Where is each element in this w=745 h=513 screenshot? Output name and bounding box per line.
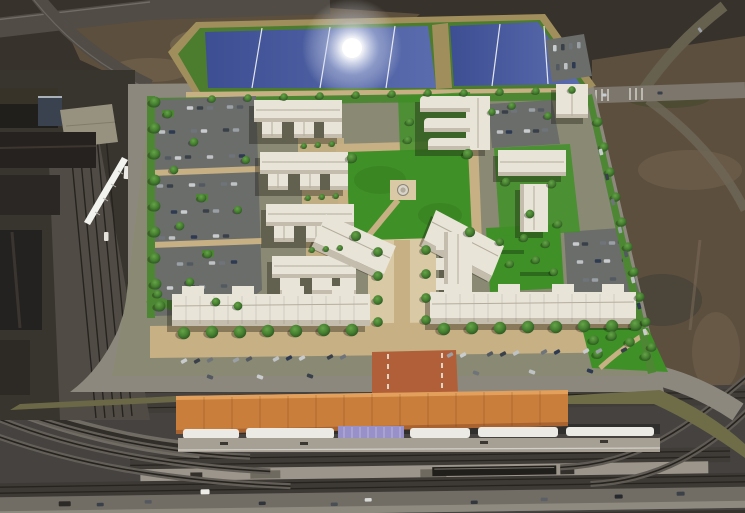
warehouse-4: [0, 230, 42, 330]
b2-building: [420, 96, 490, 150]
sun-glare-core: [342, 38, 362, 58]
corridor-train: [432, 465, 556, 476]
glass-tower: [38, 96, 62, 126]
east-block-1: [498, 150, 566, 176]
canopy-segment-4: [478, 427, 558, 437]
scene: [0, 0, 745, 513]
residential-row-2: [260, 152, 348, 190]
aerial-rendering: [0, 0, 745, 513]
warehouse-3: [0, 175, 60, 215]
canopy-segment-1: [183, 429, 239, 439]
residential-row-1: [254, 100, 342, 138]
station-crosswalk: [372, 350, 458, 396]
ne-parking-lot: [488, 100, 560, 148]
warehouse-2: [0, 132, 96, 168]
canopy-segment-5: [566, 427, 654, 436]
canopy-segment-2: [246, 428, 334, 439]
east-block-2: [520, 184, 548, 232]
gazebo-dome: [400, 187, 405, 192]
white-van-yard: [104, 232, 109, 241]
warehouse-5: [0, 340, 30, 395]
west-parking-lot: [150, 96, 262, 316]
canopy-segment-3: [410, 428, 470, 438]
pond-corner-lot: [546, 34, 592, 82]
